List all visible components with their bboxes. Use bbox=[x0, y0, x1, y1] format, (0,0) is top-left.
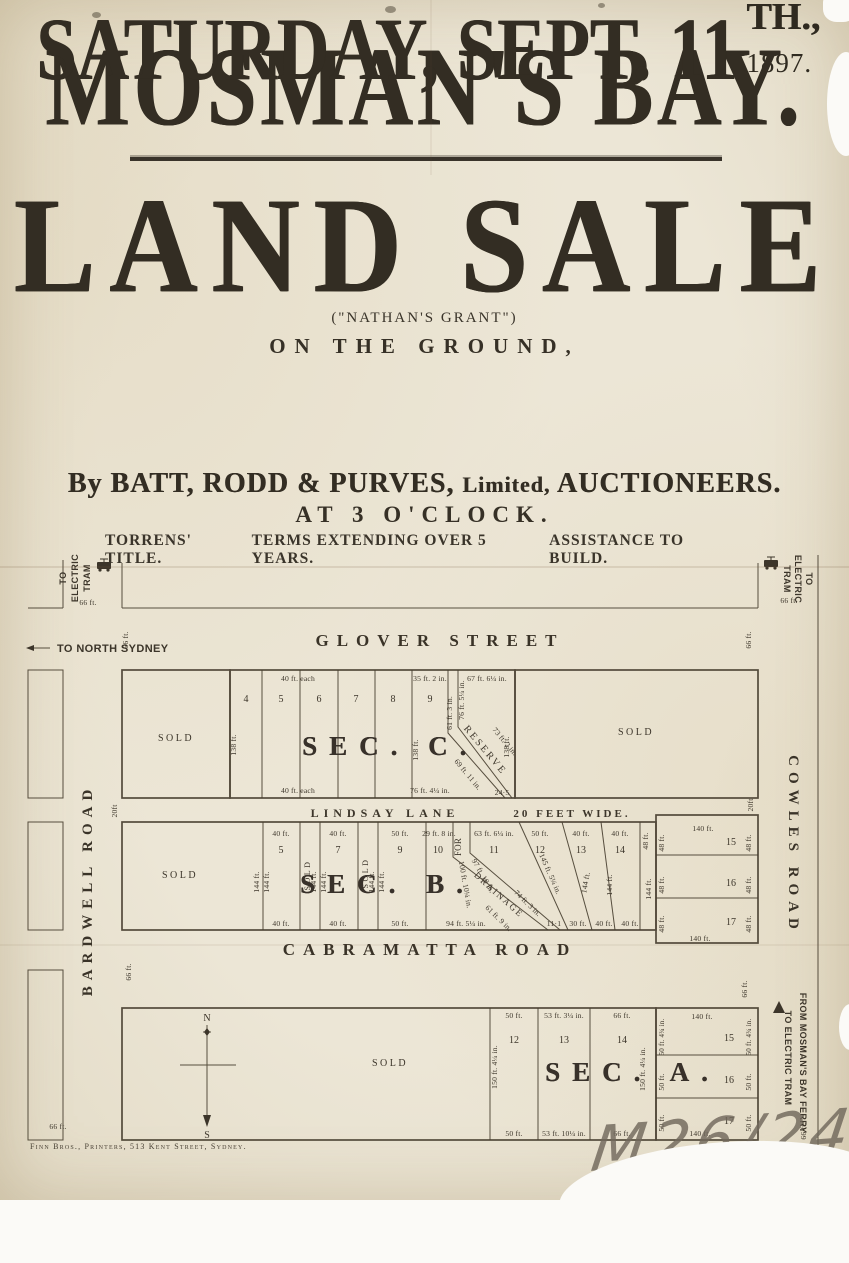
dim-48ft: 48 ft. bbox=[744, 915, 753, 932]
dim-150ft: 150 ft. 4¼ in. bbox=[490, 1045, 499, 1089]
dim-140ft: 140 ft. bbox=[692, 824, 713, 833]
dim-top: 50 ft. bbox=[531, 829, 548, 838]
dim-top: 63 ft. 6¼ in. bbox=[474, 829, 514, 838]
dim-144ft: 144 ft. bbox=[377, 871, 386, 892]
section-b: SOLD 5 7 9 10 11 12 13 14 40 ft. 40 ft. … bbox=[162, 824, 753, 943]
dim-66ft: 66 ft. bbox=[780, 596, 797, 605]
dim-66ft: 66 ft. bbox=[79, 598, 96, 607]
paper-speck bbox=[385, 6, 396, 13]
dim-144ft: 144 ft. bbox=[644, 878, 653, 899]
tram-word-to: TO bbox=[58, 571, 68, 584]
north-sydney-note: TO NORTH SYDNEY bbox=[26, 643, 169, 655]
dim-40ft-each: 40 ft. each bbox=[281, 674, 315, 683]
dim-144ft: 144 ft. bbox=[309, 871, 318, 892]
dim-bottom: 94 ft. 5¼ in. bbox=[446, 919, 486, 928]
road-cowles: COWLES ROAD bbox=[785, 755, 801, 935]
lot-number: 17 bbox=[726, 917, 736, 928]
lot-number: 5 bbox=[279, 845, 284, 856]
tram-word-electric: ELECTRIC bbox=[70, 554, 80, 602]
lot-number: 6 bbox=[317, 694, 322, 705]
fold-crease bbox=[430, 0, 432, 175]
sold-label: SOLD bbox=[158, 733, 194, 744]
dim-reserve-left: 76 ft. 5¼ in. bbox=[457, 680, 466, 720]
dim-138ft: 138 ft. bbox=[229, 734, 238, 755]
dim-top: 29 ft. 8 in. bbox=[422, 829, 456, 838]
compass-south-label: S bbox=[204, 1130, 210, 1141]
dim-lot9-bottom: 76 ft. 4¼ in. bbox=[410, 786, 450, 795]
dim-reserve-top: 67 ft. 6¼ in. bbox=[467, 674, 507, 683]
dim-144ft: 144 ft. bbox=[579, 871, 592, 893]
lot-number: 7 bbox=[336, 845, 341, 856]
date-main: SATURDAY, SEPT. 11 bbox=[36, 0, 737, 102]
lot-number: 15 bbox=[726, 837, 736, 848]
subdivision-map: N S TO ELECTRIC TRAM 66 ft. 66 ft. TO NO… bbox=[0, 545, 849, 1165]
headline: LAND SALE bbox=[0, 168, 849, 325]
dim-144ft: 144 ft. bbox=[605, 874, 614, 895]
sold-label: SOLD bbox=[372, 1058, 408, 1069]
dim-bottom: 50 ft. bbox=[505, 1129, 522, 1138]
dim-top: 40 ft. bbox=[572, 829, 589, 838]
dim-144ft: 144 ft. bbox=[252, 871, 261, 892]
dim-69ft: 69 ft. 11 in. bbox=[452, 757, 483, 792]
title-rule bbox=[130, 157, 722, 161]
grant-subtitle: ("NATHAN'S GRANT") bbox=[0, 310, 849, 327]
dim-bottom: 40 ft. bbox=[621, 919, 638, 928]
compass-north-label: N bbox=[203, 1013, 210, 1024]
auctioneer-post: AUCTIONEERS. bbox=[557, 468, 781, 499]
lot-number: 9 bbox=[398, 845, 403, 856]
dim-lot9-top: 35 ft. 2 in. bbox=[413, 674, 447, 683]
on-ground-line: ON THE GROUND, bbox=[0, 334, 849, 359]
torn-edge bbox=[823, 0, 849, 22]
dim-bottom: 40 ft. bbox=[595, 919, 612, 928]
dim-48ft: 48 ft. bbox=[657, 915, 666, 932]
dim-top: 40 ft. bbox=[611, 829, 628, 838]
time-line: AT 3 O'CLOCK. bbox=[0, 502, 849, 528]
tram-note-top-right: TO ELECTRIC TRAM 66 ft. 66 ft. bbox=[744, 555, 814, 649]
lane-lindsay: LINDSAY LANE bbox=[311, 806, 460, 820]
ferry-tram-label: TO ELECTRIC TRAM bbox=[783, 1011, 793, 1106]
dim-48ft: 48 ft. bbox=[657, 876, 666, 893]
printer-imprint: Finn Bros., Printers, 513 Kent Street, S… bbox=[30, 1142, 247, 1151]
dim-20ft: 20ft bbox=[110, 804, 119, 818]
dim-66ft: 66 ft. bbox=[124, 963, 133, 980]
lot-number: 5 bbox=[279, 694, 284, 705]
dim-138ft: 138 ft. bbox=[502, 736, 511, 757]
dim-40ft-each: 40 ft. each bbox=[281, 786, 315, 795]
auctioneer-line: By BATT, RODD & PURVES, Limited, AUCTION… bbox=[0, 468, 849, 500]
lot-number: 14 bbox=[617, 1035, 627, 1046]
lot-number: 9 bbox=[428, 694, 433, 705]
dim-top: 40 ft. bbox=[272, 829, 289, 838]
street-cabramatta: CABRAMATTA ROAD bbox=[283, 940, 578, 959]
lot-number: 7 bbox=[354, 694, 359, 705]
lot-number: 8 bbox=[391, 694, 396, 705]
lot-number: 12 bbox=[509, 1035, 519, 1046]
paper-speck bbox=[92, 12, 101, 18]
dim-48ft: 48 ft. bbox=[657, 834, 666, 851]
dim-61ft: 61 ft. 3 in. bbox=[445, 696, 454, 730]
lot-number: 14 bbox=[615, 845, 625, 856]
arrow-west-icon bbox=[26, 645, 34, 651]
dim-144ft: 144 ft. bbox=[319, 871, 328, 892]
dim-top: 50 ft. bbox=[391, 829, 408, 838]
auctioneer-pre: By BATT, RODD & PURVES, bbox=[68, 468, 455, 499]
dim-140ft: 140 ft. bbox=[689, 934, 710, 943]
tram-word-tram: TRAM bbox=[82, 564, 92, 592]
lot-number: 13 bbox=[559, 1035, 569, 1046]
dim-top: 50 ft. bbox=[505, 1011, 522, 1020]
date-line: SATURDAY, SEPT. 11 TH., 1897. bbox=[0, 0, 849, 85]
lot-number: 15 bbox=[724, 1033, 734, 1044]
street-glover: GLOVER STREET bbox=[315, 631, 564, 650]
dim-66ft: 66 ft. bbox=[49, 1122, 66, 1131]
dim-48ft: 48 ft. bbox=[744, 876, 753, 893]
lot-number: 16 bbox=[724, 1075, 734, 1086]
dim-20ft: 20ft bbox=[746, 798, 755, 812]
tram-note-top-left: TO ELECTRIC TRAM 66 ft. 66 ft. bbox=[58, 554, 130, 649]
dim-145ft: 145 ft. 5¼ in. bbox=[537, 852, 563, 896]
dim-48ft: 48 ft. bbox=[641, 832, 650, 849]
section-a-label: SEC. A. bbox=[545, 1057, 720, 1087]
dim-144ft: 144 ft. bbox=[367, 871, 376, 892]
dim-48ft: 48 ft. bbox=[744, 834, 753, 851]
dim-bottom: 30 ft. bbox=[569, 919, 586, 928]
dim-24-5: 24·5 bbox=[495, 788, 510, 797]
lane-width: 20 FEET WIDE. bbox=[513, 808, 630, 820]
sold-label: SOLD bbox=[618, 727, 654, 738]
dim-50ft-4in: 50 ft. 4¾ in. bbox=[658, 1019, 666, 1056]
dim-66ft: 66 ft. bbox=[740, 980, 749, 997]
lot-number: 13 bbox=[576, 845, 586, 856]
dim-top: 53 ft. 3¼ in. bbox=[544, 1011, 584, 1020]
paper-speck bbox=[598, 3, 605, 8]
sold-label: SOLD bbox=[162, 870, 198, 881]
section-c-label: SEC. C. bbox=[302, 731, 478, 761]
dim-bottom: 50 ft. bbox=[391, 919, 408, 928]
poster: MOSMAN'S BAY. LAND SALE ("NATHAN'S GRANT… bbox=[0, 0, 849, 1200]
dim-50ft: 50 ft. bbox=[744, 1073, 753, 1090]
lot-number: 10 bbox=[433, 845, 443, 856]
dim-144ft: 144 ft. bbox=[262, 871, 271, 892]
lot-number: 11 bbox=[489, 845, 499, 856]
lot-number: 16 bbox=[726, 878, 736, 889]
dim-top: 66 ft. bbox=[613, 1011, 630, 1020]
road-bardwell: BARDWELL ROAD bbox=[80, 784, 96, 997]
dim-bottom: 11·1 bbox=[547, 919, 561, 928]
dim-top: 40 ft. bbox=[329, 829, 346, 838]
dim-140ft: 140 ft. bbox=[691, 1012, 712, 1021]
dim-50ft: 50 ft. bbox=[657, 1073, 666, 1090]
dim-50ft-4in: 50 ft. 4¾ in. bbox=[745, 1019, 753, 1056]
lot-number: 4 bbox=[244, 694, 249, 705]
fold-crease bbox=[0, 944, 849, 946]
tram-word-to: TO bbox=[804, 572, 814, 585]
dim-bottom: 53 ft. 10¼ in. bbox=[542, 1129, 586, 1138]
section-c: SOLD 138 ft. 4 5 6 7 8 9 40 ft. each 35 … bbox=[158, 674, 654, 797]
drainage-for: FOR bbox=[453, 838, 463, 856]
north-sydney-label: TO NORTH SYDNEY bbox=[57, 643, 169, 655]
fold-crease bbox=[0, 566, 849, 568]
dim-bottom: 40 ft. bbox=[329, 919, 346, 928]
tram-word-tram: TRAM bbox=[782, 565, 792, 593]
dim-66ft: 66 ft. bbox=[744, 631, 753, 648]
auctioneer-limited: Limited, bbox=[462, 472, 550, 497]
dim-bottom: 40 ft. bbox=[272, 919, 289, 928]
